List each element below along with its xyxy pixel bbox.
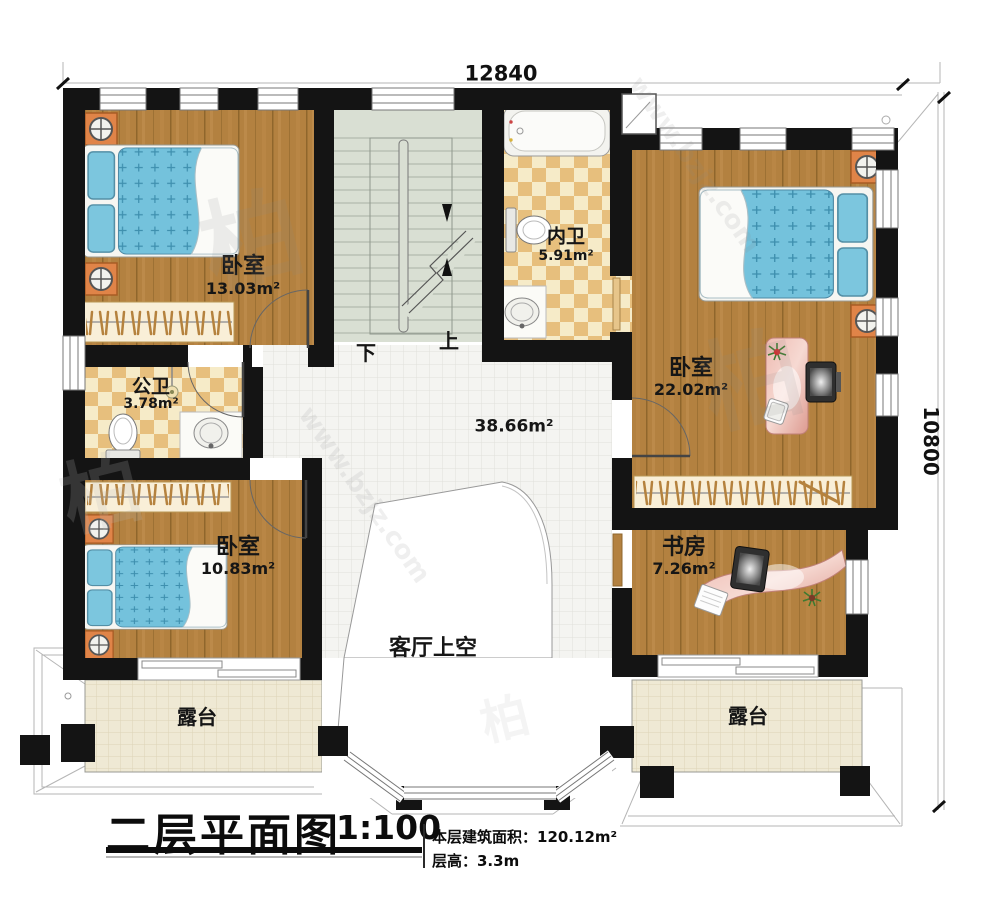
stair-up-label: 上: [439, 331, 459, 351]
title-underline: [106, 847, 422, 853]
bed-icon: [83, 145, 239, 257]
room-label-bath-inner: 内卫: [547, 228, 585, 247]
floor-area-text: 本层建筑面积：120.12m²: [432, 826, 617, 847]
terrace-left-label: 露台: [177, 707, 217, 727]
bed-icon: [699, 187, 873, 301]
nightstand-icon: [85, 113, 117, 145]
room-area-bedroom-top-left: 13.03m²: [206, 281, 280, 297]
dimension-top: 12840: [464, 64, 537, 85]
bathtub-icon: [504, 106, 610, 156]
sink-icon: [498, 286, 546, 338]
plan-scale: 1:100: [336, 808, 441, 847]
nightstand-icon: [85, 515, 113, 543]
door-leaf: [613, 278, 620, 330]
stair-down-label: 下: [356, 343, 376, 363]
plan-title: 二层平面图: [106, 799, 341, 863]
wardrobe-icon: [84, 302, 234, 342]
nightstand-icon: [85, 263, 117, 295]
column: [20, 735, 50, 765]
room-area-study: 7.26m²: [652, 561, 715, 577]
room-label-bath-public: 公卫: [132, 378, 170, 397]
void-label: 客厅上空: [389, 638, 477, 660]
column: [61, 724, 95, 762]
room-area-bedroom-bottom-left: 10.83m²: [201, 561, 275, 577]
room-label-bedroom-bottom-left: 卧室: [216, 537, 260, 559]
room-label-study: 书房: [662, 537, 706, 559]
computer-icon: [730, 546, 770, 592]
column: [840, 766, 870, 796]
room-area-bath-inner: 5.91m²: [538, 249, 593, 263]
room-area-bath-public: 3.78m²: [123, 397, 178, 411]
floor-plan-page: 12840 10800 卧室 13.03m² 内卫 5.91m² 卧室 22.0…: [0, 0, 1000, 914]
computer-icon: [806, 362, 841, 402]
flue-box: [622, 94, 656, 134]
wardrobe-icon: [85, 482, 231, 512]
hall-area-label: 38.66m²: [475, 419, 554, 436]
sink-icon: [180, 412, 242, 458]
terrace-right-label: 露台: [728, 706, 768, 726]
dimension-right: 10800: [921, 406, 941, 476]
floor-plan-drawing: [0, 0, 1000, 914]
bay-pier: [318, 726, 348, 756]
title-divider: [423, 824, 425, 868]
floor-height-text: 层高：3.3m: [432, 850, 519, 871]
nightstand-icon: [85, 631, 113, 659]
room-label-bedroom-top-left: 卧室: [221, 256, 265, 278]
column: [640, 766, 674, 798]
bed-icon: [83, 545, 227, 630]
door-leaf: [613, 534, 622, 586]
wardrobe-icon: [634, 476, 852, 510]
room-area-bedroom-right: 22.02m²: [654, 382, 728, 398]
room-label-bedroom-right: 卧室: [669, 358, 713, 380]
